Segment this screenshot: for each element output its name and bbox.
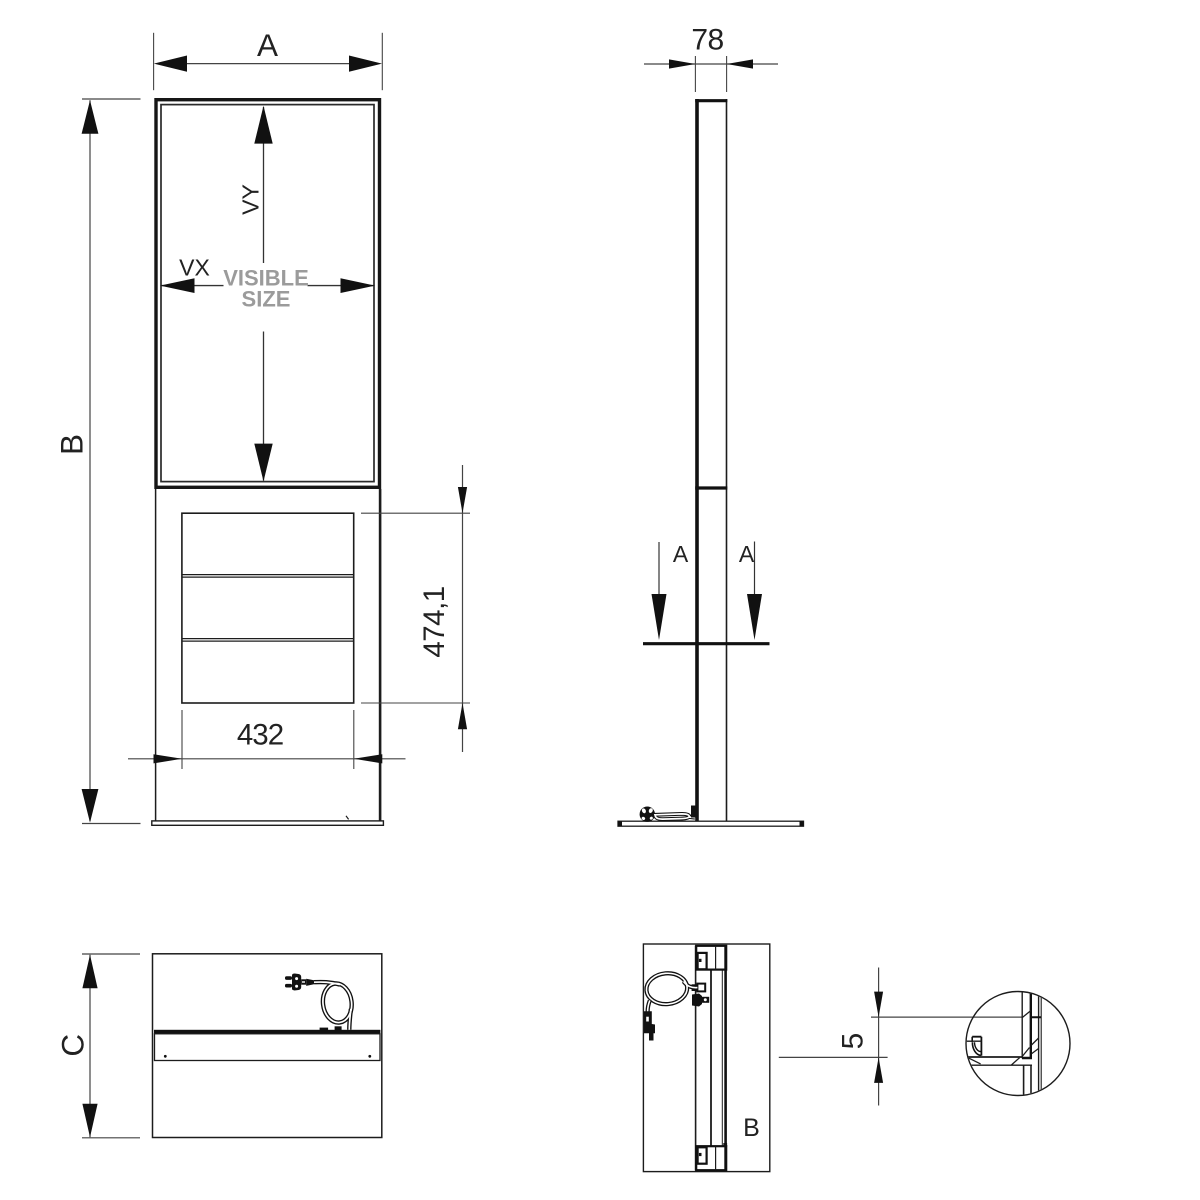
svg-text:B: B: [743, 1114, 760, 1142]
svg-text:432: 432: [237, 718, 283, 751]
svg-text:VX: VX: [179, 255, 210, 281]
svg-text:A: A: [257, 27, 278, 63]
svg-text:A: A: [673, 541, 689, 567]
svg-text:474,1: 474,1: [418, 586, 451, 657]
svg-text:B: B: [54, 434, 90, 455]
svg-text:VY: VY: [238, 184, 264, 215]
svg-text:C: C: [55, 1034, 91, 1057]
svg-text:A: A: [739, 541, 755, 567]
svg-text:78: 78: [691, 23, 723, 56]
svg-text:5: 5: [837, 1033, 870, 1050]
svg-text:SIZE: SIZE: [242, 287, 291, 312]
